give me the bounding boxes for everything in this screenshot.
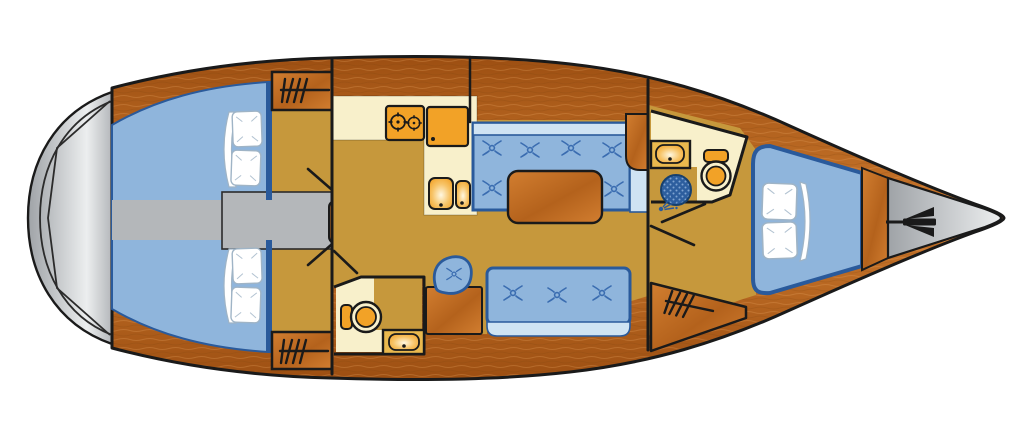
fridge-latch-icon [431, 137, 435, 141]
pillow-icon [232, 248, 262, 284]
pillow-icon [762, 222, 797, 259]
bow [862, 168, 1001, 270]
saloon-table [508, 171, 602, 223]
stove [386, 106, 424, 140]
aft-washbasin [383, 330, 424, 354]
yacht-floor-plan-page: Sailing yacht interior deck plan (top vi… [0, 0, 1024, 434]
settee-end-cabinet [626, 114, 648, 170]
forward-washbasin [651, 141, 690, 168]
pillow-icon [232, 111, 262, 147]
forward-toilet [702, 150, 731, 191]
aft-toilet [341, 302, 381, 332]
bow-bulkhead [862, 168, 888, 270]
pillow-icon [762, 183, 797, 220]
anchor-locker [888, 178, 1001, 258]
aft-head [334, 277, 424, 354]
pillow-icon [231, 287, 261, 323]
starboard-settee [487, 268, 630, 336]
yacht-floor-plan: Sailing yacht interior deck plan (top vi… [0, 0, 1024, 434]
galley-double-sink [429, 178, 470, 209]
drain-icon [439, 203, 443, 207]
pillow-icon [231, 150, 261, 186]
swim-platform [28, 92, 112, 344]
drain-icon [460, 201, 464, 205]
drain-icon [402, 344, 406, 348]
corridor [112, 200, 224, 240]
refrigerator [427, 107, 468, 146]
aft-hanging-locker-starboard [272, 332, 332, 369]
drain-icon [668, 157, 672, 161]
aft-hanging-locker-port [272, 72, 332, 110]
